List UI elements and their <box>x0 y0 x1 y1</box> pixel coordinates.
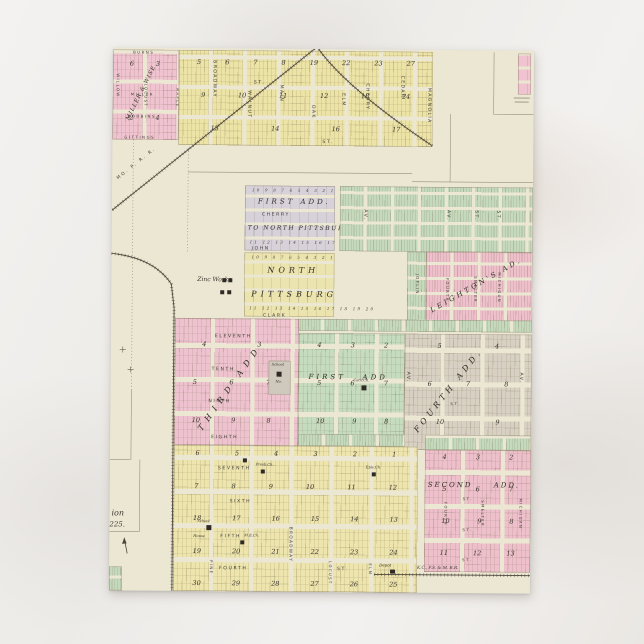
block-number: 2 <box>353 450 357 458</box>
block-number: 14 <box>271 125 279 133</box>
block-number-row: 192021222324 <box>177 546 413 556</box>
block-number: 8 <box>509 517 513 525</box>
block-number: 21 <box>271 547 279 555</box>
street-cherry-np: CHERRY <box>262 214 290 219</box>
block-number: 9 <box>231 416 235 424</box>
np-lots-row-a2: 10 9 8 7 6 5 4 3 2 1 <box>251 255 334 260</box>
second-add-block-numbers: 4325671098111213 <box>427 453 528 558</box>
street-michigan-second: MICHIGAN <box>518 499 522 530</box>
block-number: 9 <box>495 418 499 426</box>
block-number: 7 <box>384 379 388 387</box>
np-first-add-label: FIRST ADD. <box>258 198 331 206</box>
block-number: 30 <box>192 579 200 587</box>
block-number: 17 <box>392 126 400 134</box>
block-number: 3 <box>476 453 480 461</box>
block-number: 9 <box>352 417 356 425</box>
block-number: 8 <box>384 417 388 425</box>
block-number: 4 <box>202 340 206 348</box>
st-label-7: ST. <box>462 558 472 562</box>
block-number-row: 181716151413 <box>177 514 413 524</box>
block-number: 6 <box>225 58 229 66</box>
block-number: 4 <box>495 342 499 350</box>
second-add-green-band <box>425 435 531 451</box>
block-number: 16 <box>332 125 340 133</box>
catholic-church-building <box>361 385 366 390</box>
zinc-works-label: Zinc Works <box>197 277 231 283</box>
block-number: 28 <box>271 580 279 588</box>
block-number: 7 <box>509 485 513 493</box>
block-number: 16 <box>272 515 280 523</box>
block-number: 5 <box>317 379 321 387</box>
zinc-works-building-2 <box>228 278 232 282</box>
block-number-row: 109 <box>410 418 525 427</box>
catholic-church-label: Cath.Ch. <box>354 379 370 383</box>
block-number: 5 <box>193 378 197 386</box>
block-number: 8 <box>231 482 235 490</box>
block-number: 10 <box>436 418 444 426</box>
mo-pacific-rr-label: MO. P. R. R. <box>117 148 158 182</box>
block-number: 8 <box>282 59 286 67</box>
block-number: 4 <box>274 450 278 458</box>
block-number: 17 <box>232 514 240 522</box>
block-number: 3 <box>351 341 355 349</box>
np-to-north-pittsburg: TO NORTH PITTSBURG <box>248 225 351 232</box>
block-number: 2 <box>384 341 388 349</box>
left-edge-green-fragment <box>109 566 122 590</box>
block-number: 24 <box>389 548 397 556</box>
block-number: 13 <box>506 549 514 557</box>
block-number: 3 <box>156 60 160 68</box>
top-town-block-numbers: 5678192223279101112182413141617 <box>184 58 427 134</box>
block-number: 8 <box>504 380 508 388</box>
school2-building <box>206 525 211 530</box>
block-number-row: 567 <box>302 379 402 388</box>
street-michigan-leighton: MICHIGAN <box>497 272 501 303</box>
block-number: 6 <box>476 485 480 493</box>
epis-church-building <box>372 472 376 476</box>
block-number: 14 <box>350 515 358 523</box>
np-north-label: NORTH <box>267 267 319 275</box>
tiny-caption-line-1 <box>514 98 530 99</box>
street-fourth-second: FOURTH <box>443 502 447 526</box>
school-building <box>277 372 282 377</box>
photo-of-postcard-on-marble: { "card": { "misc": { "st": "ST.", "av":… <box>0 0 644 644</box>
me-church-label: M.E.Ch. <box>244 534 259 538</box>
block-number: 10 <box>192 416 200 424</box>
st-label-3: ST. <box>450 402 460 406</box>
block-number-row: 24 <box>119 113 171 121</box>
block-number-row: 1098 <box>302 417 402 426</box>
block-number: 19 <box>310 59 318 67</box>
block-number: 12 <box>473 549 481 557</box>
block-number: 22 <box>311 547 319 555</box>
depot-building <box>390 570 395 574</box>
postcard: MILLER & WISE BURNS MILLER ROBBINS GITTI… <box>109 47 534 593</box>
av-label-4: AV. <box>518 373 523 384</box>
st-label-v2: ST. <box>495 210 500 221</box>
block-number-row: 54 <box>411 342 526 351</box>
block-number: 10 <box>316 417 324 425</box>
block-number: 7 <box>253 58 257 66</box>
block-number: 23 <box>374 59 382 67</box>
block-number-row: 63 <box>119 59 171 67</box>
block-number: 2 <box>509 453 513 461</box>
block-number: 20 <box>232 547 240 555</box>
cut-text-line2: 225. <box>109 521 125 528</box>
block-number: 7 <box>466 380 470 388</box>
kcfsm-rr-label: K.C., F.S. & M. R.R. <box>417 566 458 571</box>
block-number: 5 <box>197 58 201 66</box>
north-arrow-icon <box>123 538 128 553</box>
st-label-v1: ST. <box>473 210 478 221</box>
block-number: 3 <box>257 340 261 348</box>
block-number: 11 <box>347 483 355 491</box>
street-fourth-leighton: FOURTH <box>445 278 449 302</box>
street-gittings: GITTINGS <box>124 135 155 139</box>
tiny-caption-line-2 <box>515 102 529 103</box>
block-number: 9 <box>269 482 273 490</box>
block-number: 6 <box>196 449 200 457</box>
block-number: 4 <box>155 114 159 122</box>
block-number: 2 <box>129 113 133 121</box>
first-add-block-numbers: 4325671098 <box>302 341 403 426</box>
block-number: 29 <box>232 579 240 587</box>
street-eighth: EIGHTH <box>211 436 238 441</box>
block-number: 13 <box>211 124 219 132</box>
st-label-6: ST. <box>462 528 472 532</box>
block-number-row: 432 <box>428 453 528 462</box>
block-number: 18 <box>361 92 369 100</box>
av-label-1: AV. <box>362 209 367 220</box>
presb-church-building <box>261 470 265 474</box>
adjacent-plat-fragment <box>518 54 531 95</box>
zinc-works-building-1 <box>222 278 226 282</box>
clark-green-band <box>297 319 532 333</box>
block-number-row: 567 <box>428 485 528 494</box>
av-label-3: AV. <box>405 372 410 383</box>
school2-label: School <box>197 520 209 524</box>
av-label-2: AV. <box>445 210 450 221</box>
block-number: 5 <box>235 449 239 457</box>
block-number: 22 <box>342 59 350 67</box>
block-number: 10 <box>306 482 314 490</box>
block-number: 13 <box>390 516 398 524</box>
block-number-row: 111213 <box>427 549 527 558</box>
block-number: 19 <box>193 546 201 554</box>
st-label-5: ST. <box>463 497 473 501</box>
block-number: 23 <box>350 548 358 556</box>
block-number: 5 <box>442 485 446 493</box>
street-smelter-leighton: SMELTER <box>473 276 477 303</box>
block-number: 6 <box>229 378 233 386</box>
block-number: 27 <box>407 60 415 68</box>
block-number-row: 654321 <box>178 449 414 459</box>
street-burns: BURNS <box>133 51 154 55</box>
st-label-2: ST. <box>322 141 333 146</box>
school-no-label: School <box>272 364 284 368</box>
block-number: 27 <box>310 580 318 588</box>
block-number: 4 <box>317 341 321 349</box>
block-number-row: 43 <box>177 340 287 349</box>
middle-green-blocks <box>340 186 534 253</box>
block-number: 25 <box>389 581 397 589</box>
block-number: 24 <box>402 93 410 101</box>
block-number: 26 <box>350 580 358 588</box>
zinc-works-building-3 <box>220 290 224 294</box>
block-number: 12 <box>389 483 397 491</box>
block-number: 1 <box>392 451 396 459</box>
depot-label: Depot <box>379 563 391 567</box>
miller-wise-block-numbers: 6324 <box>119 59 171 121</box>
block-number: 4 <box>442 453 446 461</box>
building-near-seventh <box>243 458 247 462</box>
school-no2-label: No. <box>275 381 281 385</box>
cut-text-line1: ion <box>111 509 124 517</box>
block-number: 5 <box>437 342 441 350</box>
block-number: 11 <box>279 92 287 100</box>
house-label: House <box>193 535 205 539</box>
zinc-works-building-4 <box>227 290 231 294</box>
me-church-building <box>240 540 244 544</box>
block-number: 6 <box>428 380 432 388</box>
block-number-row: 789101112 <box>178 481 414 491</box>
block-number-row: 1098 <box>176 416 286 425</box>
street-joplin: JOPLIN <box>415 274 419 295</box>
block-number: 10 <box>238 91 246 99</box>
block-number: 6 <box>130 59 134 67</box>
block-number-row: 567819222327 <box>185 58 427 68</box>
block-number: 12 <box>320 92 328 100</box>
block-number: 7 <box>194 482 198 490</box>
presb-church-label: Presb.Ch. <box>256 463 274 467</box>
fourth-add-block-numbers: 54678109 <box>410 342 526 427</box>
block-number: 11 <box>440 549 448 557</box>
np-lots-row-a1: 10 9 8 7 6 5 4 3 2 1 <box>252 188 335 193</box>
block-number: 15 <box>311 515 319 523</box>
block-number-row: 678 <box>410 380 525 389</box>
block-number: 3 <box>313 450 317 458</box>
street-smelter-second: SMELTER <box>480 500 484 527</box>
eighth-green-band <box>298 434 405 447</box>
street-john: JOHN <box>252 247 270 252</box>
block-number-row: 91011121824 <box>185 91 427 101</box>
np-pittsburg-label: PITTSBURG <box>251 290 337 299</box>
epis-church-label: Epis.Ch. <box>366 466 381 470</box>
block-number: 9 <box>201 91 205 99</box>
block-number-row: 432 <box>303 341 403 350</box>
block-number: 8 <box>266 417 270 425</box>
